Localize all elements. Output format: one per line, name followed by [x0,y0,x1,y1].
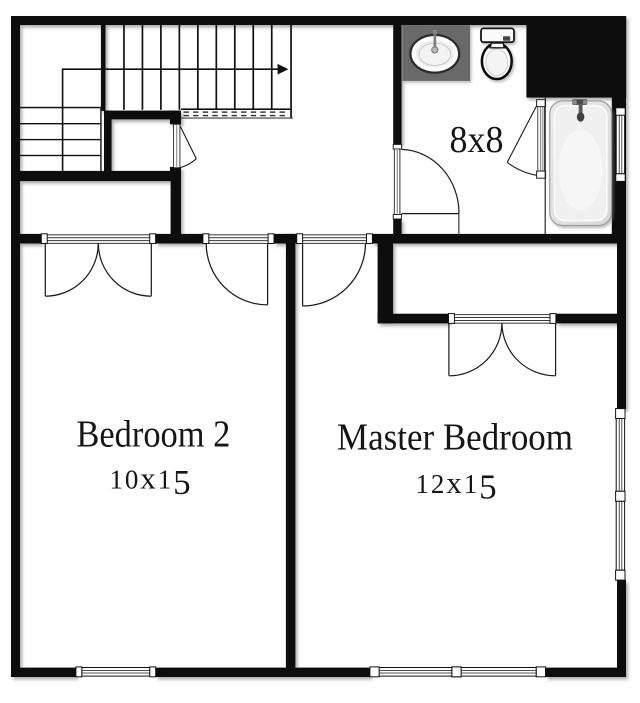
svg-text:Bedroom 2: Bedroom 2 [76,414,230,456]
svg-text:Master Bedroom: Master Bedroom [337,416,573,458]
svg-text:8x8: 8x8 [450,119,504,161]
